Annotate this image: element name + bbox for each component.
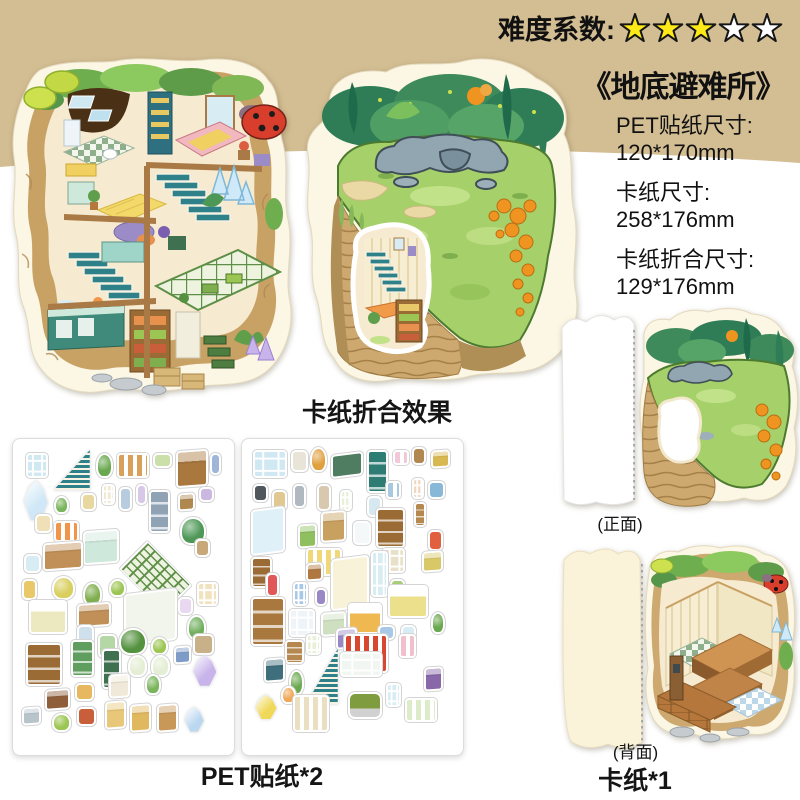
sticker-misc [266, 573, 279, 597]
spec-card-folded-size: 卡纸折合尺寸: 129*176mm [616, 246, 800, 300]
caption-sticker-sheets: PET贴纸*2 [162, 757, 362, 793]
sticker-plant [310, 447, 327, 471]
sticker-plant [52, 576, 75, 600]
sticker-box [109, 674, 130, 698]
sticker-misc [75, 683, 94, 701]
sticker-box [22, 707, 41, 725]
sticker-plant [54, 496, 69, 514]
product-title: 《地底避难所》 [566, 62, 800, 106]
sticker-stairs [54, 450, 90, 490]
sticker-box [43, 542, 83, 570]
sticker-misc [178, 597, 193, 615]
sticker-box [174, 646, 191, 664]
sticker-box [298, 524, 317, 548]
skylight [88, 110, 112, 121]
spec-list: PET贴纸尺寸: 120*170mm 卡纸尺寸: 258*176mm 卡纸折合尺… [616, 112, 800, 313]
sticker-rug [386, 481, 401, 499]
sticker-misc [193, 634, 214, 655]
star-filled-icon [652, 11, 684, 45]
sticker-box [424, 667, 443, 691]
sticker-misc [195, 539, 210, 557]
sticker-misc [136, 484, 147, 505]
sticker-shelf [149, 490, 170, 533]
sticker-misc [291, 450, 308, 471]
sticker-bed [29, 600, 67, 634]
sticker-box [264, 658, 285, 682]
sticker-window [412, 478, 425, 499]
sticker-box [176, 450, 208, 487]
star-empty-icon [718, 11, 750, 45]
sticker-shelf [414, 502, 427, 526]
sticker-misc [317, 484, 332, 512]
sticker-plant [145, 674, 162, 695]
sticker-sheet-1 [12, 438, 235, 756]
sticker-panel [331, 557, 369, 609]
sticker-rug [393, 450, 410, 465]
sticker-box [321, 511, 346, 542]
sticker-window [293, 582, 308, 606]
spec-card-size: 卡纸尺寸: 258*176mm [616, 179, 800, 233]
caption-back: (背面) [588, 738, 683, 763]
sticker-misc [428, 530, 443, 551]
sticker-rug [399, 634, 416, 658]
star-empty-icon [751, 11, 783, 45]
sticker-sheet-2-content [247, 444, 458, 750]
sticker-sheet-2 [241, 438, 464, 756]
spec-label: 卡纸尺寸: [616, 179, 800, 206]
sticker-misc [24, 554, 41, 572]
card-interior-illustration [6, 54, 294, 399]
sticker-shelf [367, 450, 388, 493]
sticker-box [105, 701, 126, 729]
front-art [640, 308, 798, 506]
card-front-illustration [556, 300, 800, 518]
sticker-shelf [285, 640, 304, 664]
product-page: 难度系数: 《地底避难所》 PET贴纸尺寸: 120*170mm 卡纸尺寸: 2… [0, 0, 800, 800]
sticker-plant [119, 628, 146, 656]
spec-value: 120*170mm [616, 139, 800, 166]
spec-value: 258*176mm [616, 206, 800, 233]
sticker-misc [412, 447, 427, 465]
sticker-misc [428, 481, 445, 499]
spec-label: 卡纸折合尺寸: [616, 246, 800, 273]
sticker-misc [119, 487, 132, 511]
spec-pet-size: PET贴纸尺寸: 120*170mm [616, 112, 800, 166]
difficulty-label: 难度系数: [498, 8, 615, 47]
sticker-window [26, 453, 47, 477]
sticker-plant [52, 713, 71, 731]
sticker-window [340, 490, 353, 511]
sticker-plant [431, 612, 446, 633]
sticker-box [83, 530, 119, 564]
back-art [645, 546, 794, 742]
sticker-sofa [348, 692, 382, 720]
sticker-rug [405, 698, 437, 722]
terrarium [102, 242, 144, 262]
card-folded-illustration [290, 56, 585, 394]
sticker-shelf [71, 640, 94, 677]
skylight [68, 96, 94, 108]
sticker-window [289, 609, 314, 637]
caption-card-count: 卡纸*1 [575, 761, 695, 797]
sticker-bed [388, 585, 428, 619]
sticker-misc [22, 579, 37, 600]
sticker-window [371, 551, 388, 597]
sticker-box [178, 493, 195, 511]
door-column [670, 656, 683, 700]
sticker-crystal [193, 655, 216, 686]
sticker-window [340, 652, 382, 676]
sticker-misc [210, 453, 221, 474]
sticker-box [431, 450, 450, 468]
cutaway-interior [353, 225, 429, 352]
sticker-rug [293, 695, 329, 732]
sticker-plant [151, 637, 168, 655]
sticker-panel [251, 508, 285, 554]
sticker-misc [35, 514, 52, 532]
sticker-misc [153, 453, 172, 468]
sticker-box [45, 689, 70, 710]
caption-folded-effect: 卡纸折合效果 [287, 393, 467, 429]
sticker-sheet-1-content [18, 444, 229, 750]
sticker-shelf [251, 597, 285, 646]
sticker-crystal [255, 695, 276, 719]
star-filled-icon [685, 11, 717, 45]
sticker-box [422, 551, 443, 572]
card-back-illustration [554, 536, 799, 762]
sticker-window [197, 582, 218, 606]
spec-label: PET贴纸尺寸: [616, 112, 800, 139]
sticker-panel [331, 453, 363, 477]
sticker-misc [353, 521, 372, 545]
sticker-misc [199, 487, 214, 502]
sticker-crystal [185, 707, 204, 731]
sticker-box [130, 704, 151, 732]
spec-value: 129*176mm [616, 273, 800, 300]
sticker-box [306, 563, 323, 581]
cutout-hole [659, 398, 701, 462]
difficulty-stars [619, 11, 783, 45]
sticker-misc [253, 484, 268, 502]
blank-page-back [563, 549, 642, 748]
sticker-plant [96, 453, 113, 477]
sticker-rug [54, 521, 79, 542]
sticker-rug [117, 453, 149, 477]
sticker-misc [315, 588, 328, 606]
caption-front: (正面) [580, 510, 660, 535]
sticker-window [102, 484, 115, 505]
difficulty-row: 难度系数: [498, 8, 783, 47]
sticker-window [386, 683, 401, 707]
blank-page [562, 315, 634, 504]
sticker-misc [81, 493, 96, 511]
post [144, 166, 150, 378]
sticker-misc [77, 707, 96, 725]
sticker-box [157, 704, 178, 732]
sticker-shelf [376, 508, 406, 548]
fridge [176, 312, 200, 358]
sticker-window [253, 450, 287, 478]
sticker-misc [293, 484, 306, 508]
sticker-shelf [26, 643, 62, 686]
star-filled-icon [619, 11, 651, 45]
